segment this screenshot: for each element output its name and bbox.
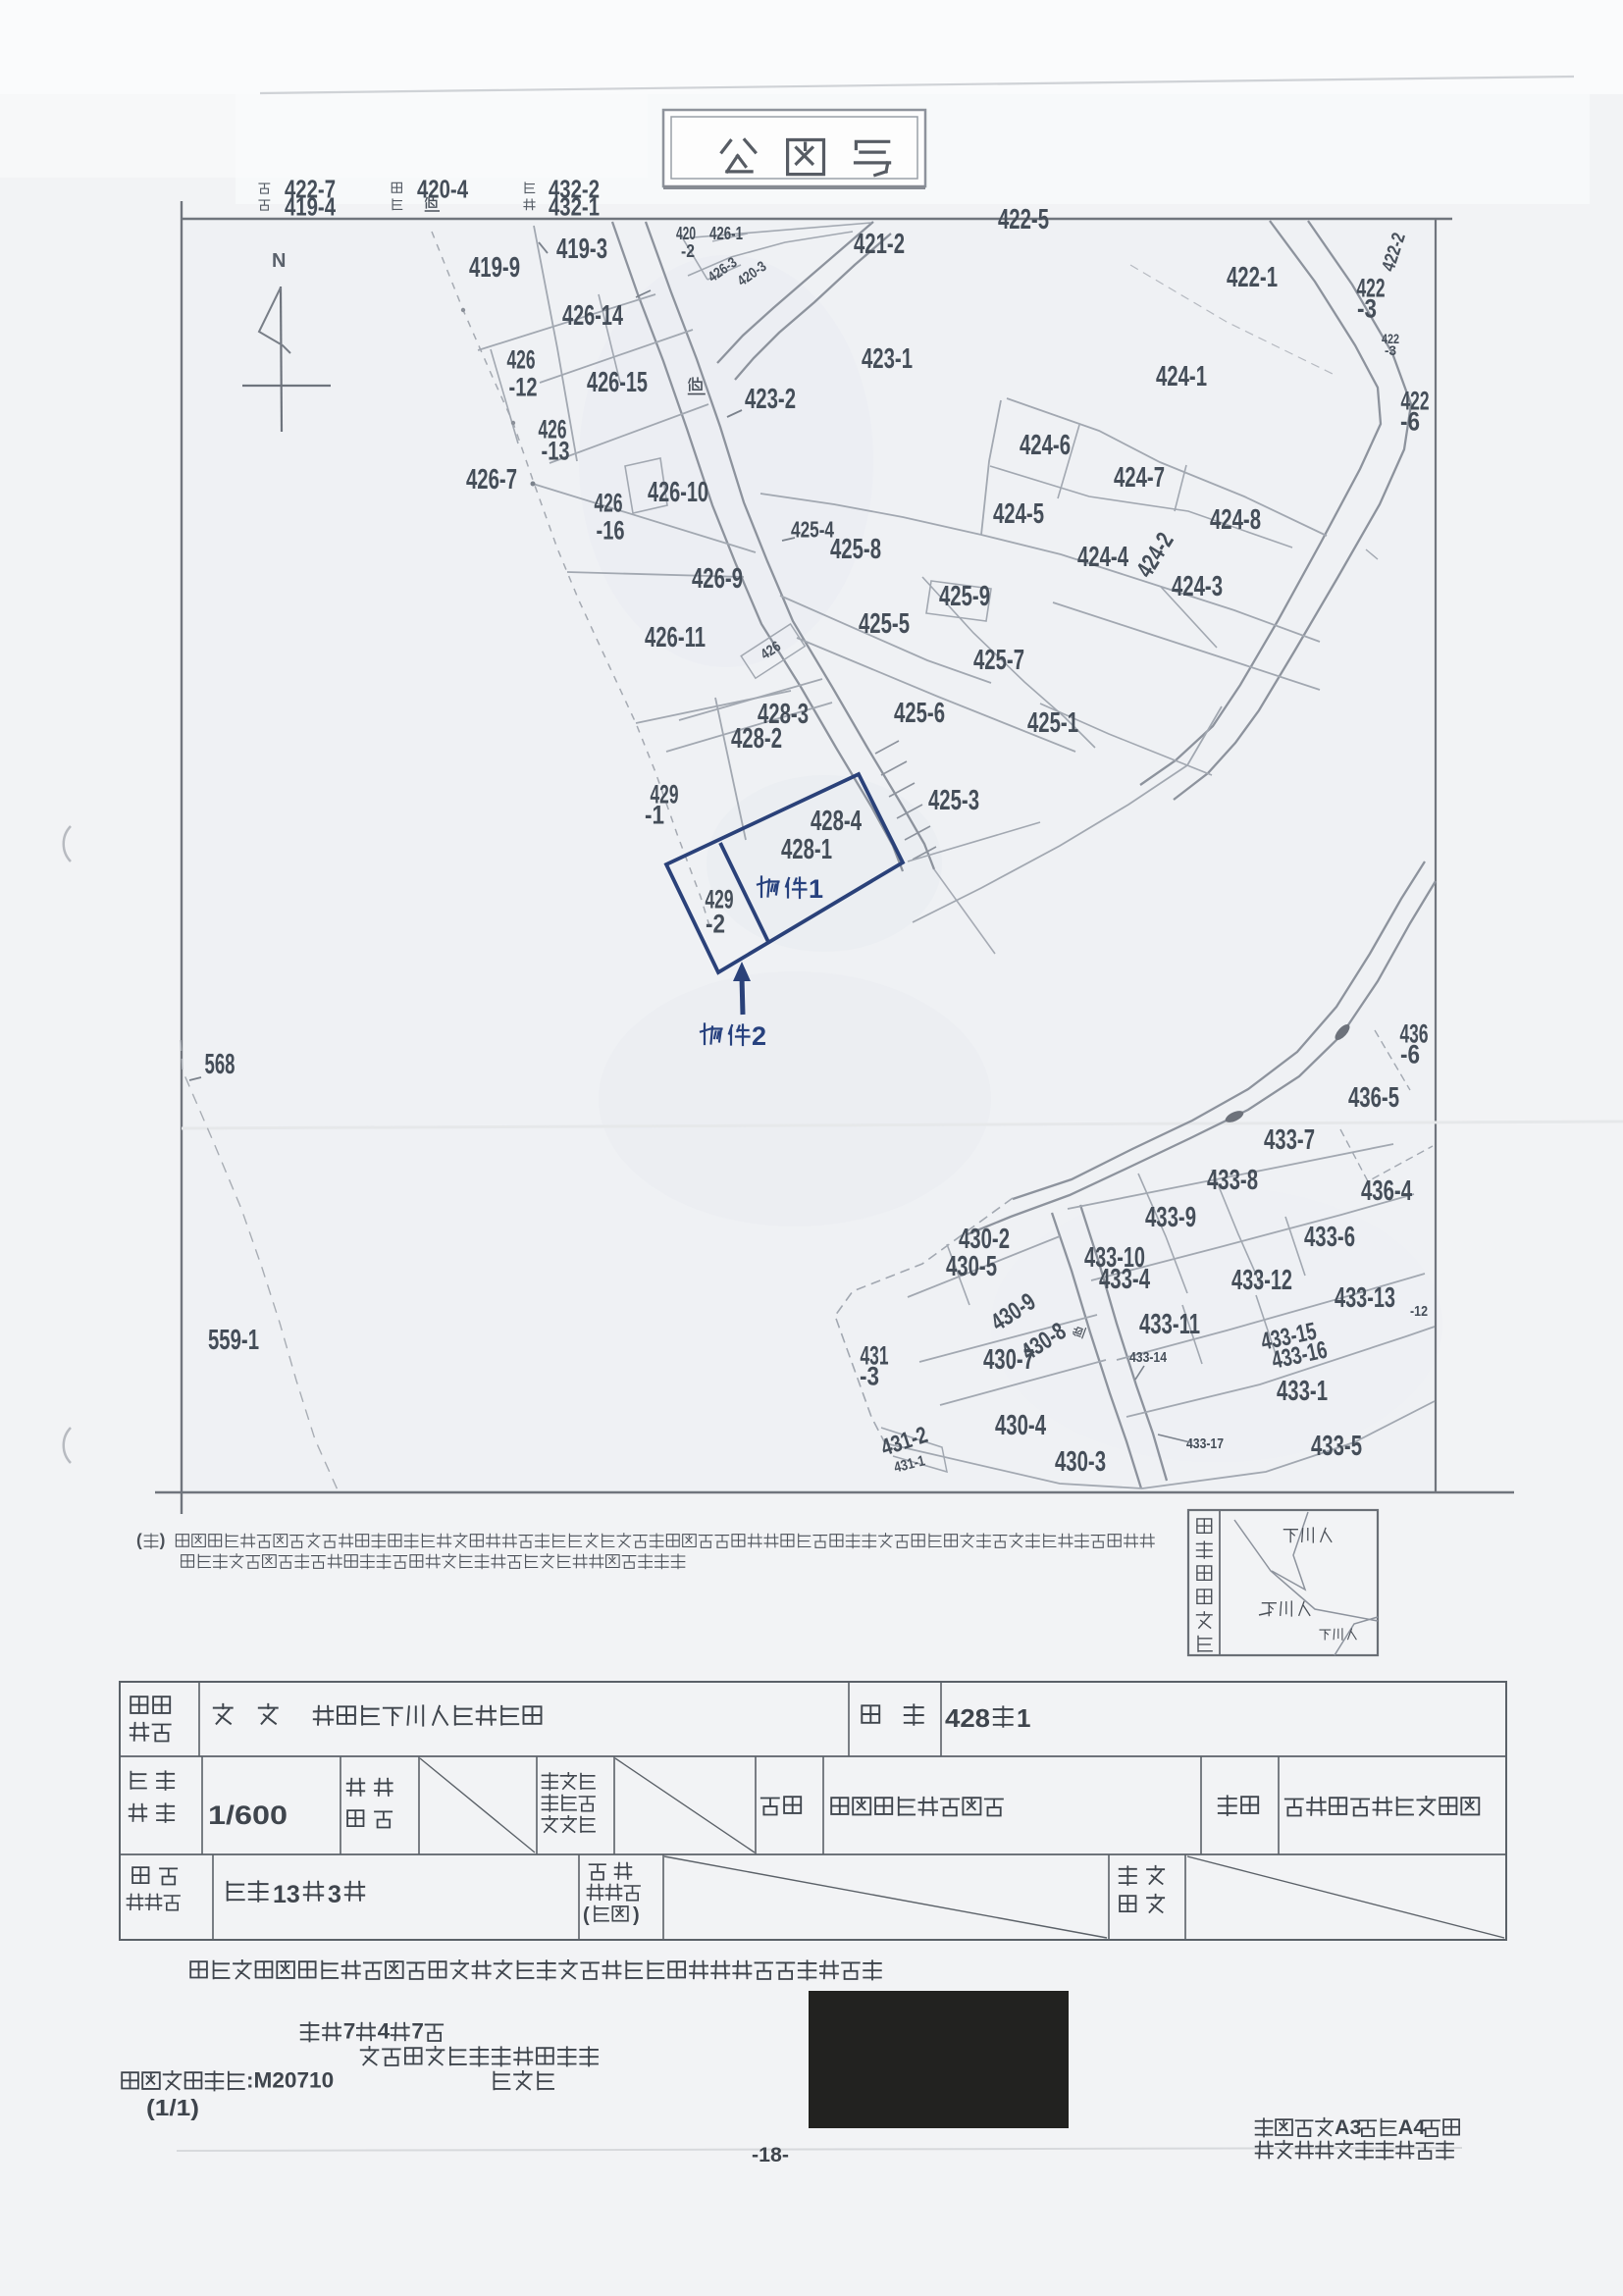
svg-text:-12: -12 (1410, 1303, 1428, 1320)
svg-text:428-2: 428-2 (731, 723, 782, 755)
svg-text:436-5: 436-5 (1348, 1082, 1399, 1114)
svg-text:424-7: 424-7 (1114, 462, 1165, 494)
svg-text:433-17: 433-17 (1186, 1435, 1224, 1452)
svg-text:7: 7 (411, 2019, 424, 2044)
svg-text:428-1: 428-1 (781, 834, 832, 865)
svg-text:433-11: 433-11 (1139, 1309, 1200, 1340)
svg-text:-16: -16 (597, 515, 625, 545)
svg-text:421-2: 421-2 (854, 229, 905, 260)
svg-text:433-9: 433-9 (1145, 1202, 1196, 1233)
svg-text:433-7: 433-7 (1264, 1124, 1315, 1156)
svg-text:425-9: 425-9 (939, 581, 990, 612)
svg-text:-18-: -18- (752, 2144, 789, 2166)
svg-text:424-4: 424-4 (1077, 542, 1128, 573)
svg-text:428: 428 (945, 1703, 990, 1733)
svg-text:4: 4 (378, 2019, 391, 2044)
svg-text:424-5: 424-5 (993, 498, 1044, 530)
svg-text:433-14: 433-14 (1129, 1349, 1168, 1366)
svg-text:428-4: 428-4 (811, 806, 862, 837)
svg-text:425-7: 425-7 (973, 645, 1024, 676)
svg-text:3: 3 (328, 1881, 341, 1908)
svg-text:424-8: 424-8 (1210, 504, 1261, 536)
svg-text:2: 2 (752, 1021, 766, 1051)
svg-text:426: 426 (595, 488, 623, 517)
svg-text:423-2: 423-2 (745, 384, 796, 415)
svg-text:426-1: 426-1 (709, 224, 743, 243)
svg-text:436-4: 436-4 (1361, 1175, 1412, 1207)
svg-text:426-9: 426-9 (692, 563, 743, 595)
svg-text:(: ( (583, 1905, 590, 1926)
svg-text:-3: -3 (860, 1361, 879, 1390)
svg-text:423-1: 423-1 (862, 343, 913, 375)
svg-text:433-5: 433-5 (1311, 1431, 1362, 1462)
svg-text:425-4: 425-4 (791, 517, 834, 543)
svg-text:568: 568 (205, 1049, 236, 1080)
svg-text:422-5: 422-5 (998, 204, 1049, 235)
svg-text:426-14: 426-14 (562, 300, 623, 332)
svg-text:-6: -6 (1400, 1039, 1420, 1069)
svg-text:-6: -6 (1400, 406, 1420, 436)
svg-text:430-3: 430-3 (1055, 1446, 1106, 1478)
svg-text:1/600: 1/600 (208, 1800, 288, 1830)
svg-text:433-6: 433-6 (1304, 1222, 1355, 1253)
svg-text:A4: A4 (1398, 2115, 1426, 2139)
svg-text:426-15: 426-15 (587, 367, 648, 398)
svg-text:432-1: 432-1 (549, 192, 600, 222)
svg-text:419-3: 419-3 (556, 234, 607, 265)
svg-text:419-4: 419-4 (285, 192, 336, 222)
svg-text:425-3: 425-3 (928, 785, 979, 816)
svg-text:1: 1 (809, 874, 823, 904)
svg-text:-2: -2 (681, 241, 695, 261)
svg-text:426: 426 (507, 344, 536, 374)
svg-text:13: 13 (273, 1881, 300, 1908)
svg-text:433-1: 433-1 (1277, 1376, 1328, 1407)
svg-text:(1/1): (1/1) (146, 2095, 199, 2120)
svg-text:-13: -13 (542, 436, 570, 465)
svg-text:430-4: 430-4 (995, 1410, 1046, 1441)
svg-text:425-1: 425-1 (1027, 707, 1078, 739)
svg-text:424-1: 424-1 (1156, 361, 1207, 392)
svg-text:425-5: 425-5 (859, 608, 910, 640)
svg-text:1: 1 (1017, 1703, 1030, 1733)
svg-text:426-10: 426-10 (648, 477, 708, 508)
svg-text:-1: -1 (645, 800, 664, 829)
svg-text:433-8: 433-8 (1207, 1165, 1258, 1196)
svg-text:424-3: 424-3 (1172, 571, 1223, 602)
svg-text:): ) (633, 1905, 640, 1926)
svg-text:): ) (160, 1531, 166, 1550)
svg-text::M20710: :M20710 (246, 2068, 334, 2093)
svg-text:N: N (272, 250, 286, 272)
svg-text:425-6: 425-6 (894, 698, 945, 729)
svg-text:559-1: 559-1 (208, 1325, 259, 1356)
svg-text:-3: -3 (1385, 342, 1396, 358)
svg-text:A3: A3 (1335, 2115, 1362, 2139)
svg-text:419-9: 419-9 (469, 252, 520, 284)
svg-text:426-7: 426-7 (466, 464, 517, 496)
svg-text:426-11: 426-11 (645, 622, 706, 653)
svg-text:420-4: 420-4 (417, 175, 468, 204)
svg-text:424-6: 424-6 (1020, 430, 1071, 461)
svg-text:425-8: 425-8 (830, 534, 881, 565)
svg-text:-2: -2 (706, 909, 725, 938)
svg-text:433-12: 433-12 (1231, 1265, 1292, 1296)
svg-text:(: ( (136, 1531, 142, 1550)
svg-text:7: 7 (343, 2019, 356, 2044)
svg-text:422-1: 422-1 (1227, 262, 1278, 293)
svg-text:-3: -3 (1357, 293, 1377, 323)
svg-text:433-13: 433-13 (1335, 1282, 1395, 1314)
svg-text:420: 420 (676, 224, 696, 243)
svg-text:433-4: 433-4 (1099, 1264, 1150, 1295)
svg-text:-12: -12 (509, 372, 538, 401)
svg-text:430-5: 430-5 (946, 1251, 997, 1282)
